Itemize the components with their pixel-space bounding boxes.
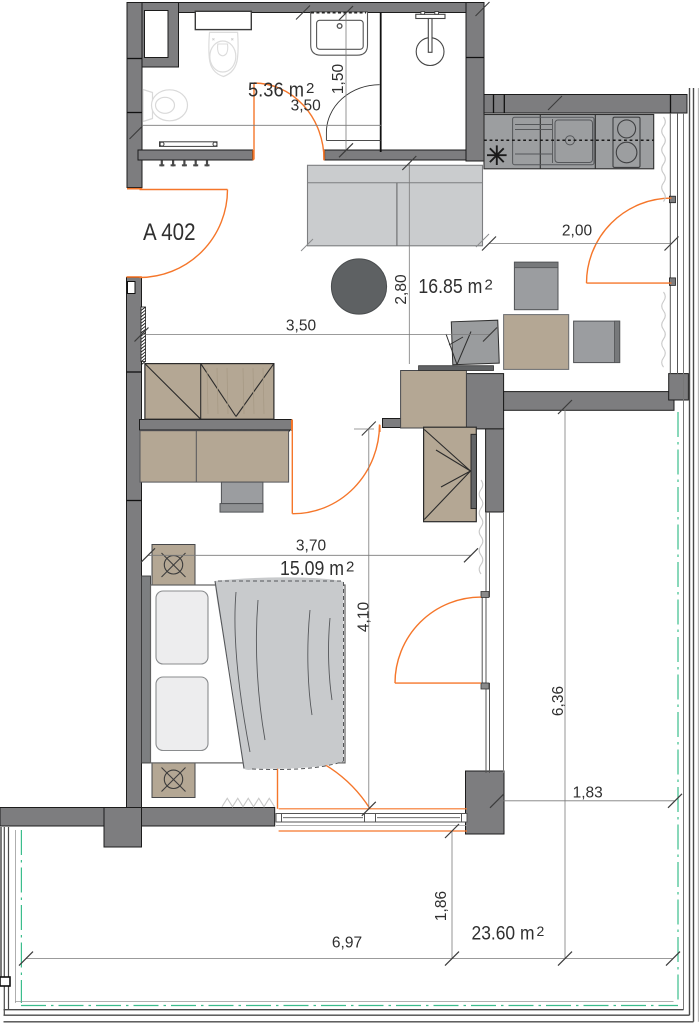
svg-text:2: 2	[346, 559, 354, 576]
svg-text:23.60 m: 23.60 m	[472, 923, 535, 945]
svg-text:1,86: 1,86	[433, 891, 450, 921]
svg-text:2,80: 2,80	[393, 274, 410, 305]
svg-text:4,10: 4,10	[356, 602, 373, 633]
svg-text:2,00: 2,00	[562, 223, 593, 240]
svg-text:3,70: 3,70	[296, 538, 327, 555]
svg-text:3,50: 3,50	[286, 318, 317, 335]
svg-text:3,50: 3,50	[291, 98, 322, 115]
svg-text:6,36: 6,36	[550, 686, 567, 716]
svg-text:2: 2	[485, 277, 493, 294]
svg-text:16.85 m: 16.85 m	[418, 275, 482, 298]
svg-text:2: 2	[537, 923, 545, 939]
svg-text:6,97: 6,97	[332, 935, 362, 952]
svg-text:A 402: A 402	[143, 219, 196, 246]
svg-text:1,50: 1,50	[330, 64, 347, 95]
svg-text:2: 2	[306, 80, 314, 97]
svg-text:15.09 m: 15.09 m	[280, 557, 344, 580]
svg-text:1,83: 1,83	[573, 785, 603, 802]
